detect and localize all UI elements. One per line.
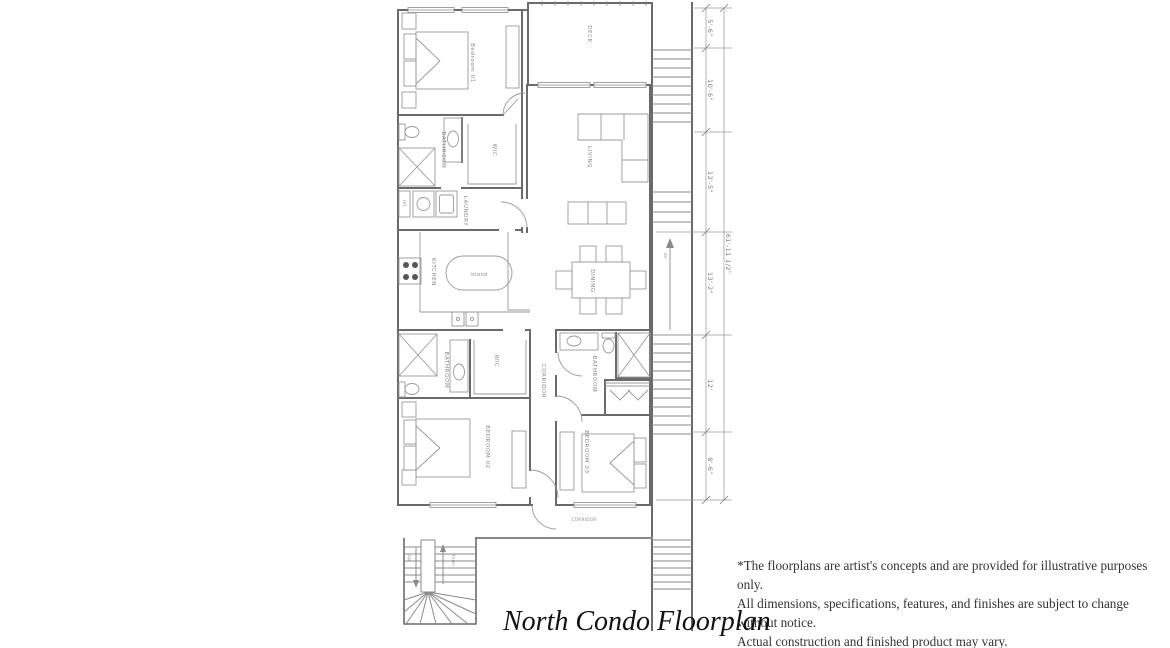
toilet-tank-icon — [399, 124, 405, 140]
room-label-wic-btm: WIC — [493, 355, 499, 368]
faucet-icon — [456, 317, 459, 320]
disclaimer-line-1: *The floorplans are artist's concepts an… — [737, 556, 1169, 594]
stair-label-up: up — [407, 555, 412, 561]
room-label-laundry: LAUNDRY — [462, 196, 468, 226]
floorplan-page: Bedroom 01 DECK BATHROOM WIC LAUNDRY ref… — [0, 0, 1170, 648]
wic-shelves-icon — [474, 340, 526, 394]
room-label-ref: ref — [402, 200, 407, 207]
stair-treads — [652, 50, 692, 589]
room-label-bathroom-btm: BATHROOM — [443, 352, 449, 389]
sink-icon — [448, 131, 459, 147]
vanity-icon — [450, 340, 468, 392]
stair-label-dn: dn — [663, 253, 668, 259]
bed-fold-icon — [416, 38, 440, 84]
arrowhead-icon — [440, 544, 446, 552]
toilet-tank-icon — [399, 382, 405, 397]
chair-icon — [606, 298, 622, 314]
winder-treads — [404, 592, 476, 624]
kitchen-sink-icon — [466, 312, 478, 326]
bed-fold-icon — [416, 426, 440, 470]
dim-label: 10'-6" — [706, 79, 714, 101]
shower-x-icon — [399, 148, 435, 186]
bedroom01-furniture — [402, 13, 519, 108]
door-arc-icon — [532, 505, 556, 529]
nightstand-icon — [402, 470, 416, 485]
bed-icon — [416, 419, 470, 477]
disclaimer-line-2: All dimensions, specifications, features… — [737, 594, 1169, 632]
room-label-island: island — [470, 272, 487, 278]
bedroom03-furniture — [560, 432, 646, 492]
chair-icon — [630, 271, 646, 289]
nightstand-icon — [402, 402, 416, 417]
pillow-icon — [634, 464, 646, 488]
stair-treads — [404, 547, 476, 582]
room-label-bedroom03: BEDROOM 03 — [583, 430, 589, 473]
disclaimer: *The floorplans are artist's concepts an… — [737, 556, 1169, 648]
chair-icon — [580, 298, 596, 314]
room-label-living: LIVING — [586, 146, 592, 168]
room-label-bedroom02: BEDROOM 02 — [484, 425, 490, 468]
bathroom-bottom-fixtures — [399, 334, 526, 397]
plan-title: North Condo Floorplan — [503, 606, 771, 638]
washer-icon — [413, 191, 434, 217]
console-divider — [588, 202, 607, 224]
toilet-tank-icon — [602, 333, 615, 338]
room-label-bedroom01: Bedroom 01 — [469, 43, 475, 83]
pillow-icon — [404, 446, 416, 470]
chair-icon — [580, 246, 596, 262]
stair-strip — [652, 50, 692, 589]
kitchen-fixtures — [399, 232, 530, 326]
dining-furniture — [556, 246, 646, 314]
doors — [501, 93, 582, 529]
toilet-icon — [405, 384, 419, 395]
door-arc-icon — [501, 202, 527, 228]
sink-icon — [454, 364, 465, 380]
room-label-corridor-v: CORRIDOR — [540, 364, 546, 399]
walls — [398, 3, 692, 630]
room-label-kitchen: KITCHEN — [430, 258, 436, 286]
disclaimer-line-3: Actual construction and finished product… — [737, 632, 1169, 648]
bedroom02-furniture — [402, 402, 526, 488]
dim-label: 12'-5" — [706, 171, 714, 193]
door-arc-icon — [556, 396, 582, 422]
bed-fold-icon — [610, 441, 634, 485]
dresser-icon — [512, 431, 526, 488]
living-furniture — [568, 114, 648, 224]
arrowhead-icon — [666, 238, 674, 248]
dim-label: 8'-6" — [706, 457, 714, 474]
door-arc-icon — [558, 352, 582, 376]
floorplan-drawing: Bedroom 01 DECK BATHROOM WIC LAUNDRY ref… — [0, 0, 1170, 648]
room-label-dining: DINING — [589, 269, 595, 293]
sink-icon — [567, 336, 581, 346]
stair-label-down: down — [451, 554, 456, 567]
dim-label-total: 61'-11 1/2" — [724, 234, 732, 275]
room-label-bathroom-right: BATHROOM — [591, 356, 597, 393]
room-label-wic-top: WIC — [491, 144, 497, 157]
range-icon — [399, 258, 421, 284]
shower-x-icon — [399, 334, 437, 376]
dresser-icon — [506, 26, 519, 88]
door-arc-icon — [530, 470, 558, 498]
toilet-icon — [603, 339, 614, 353]
dimension-labels: 5'-6" 10'-6" 12'-5" 13'-2" 12' 8'-6" 61'… — [706, 19, 732, 474]
dim-label: 5'-6" — [706, 19, 714, 36]
room-label-deck: DECK — [586, 25, 592, 43]
switchback-stairs — [404, 538, 476, 624]
hanger-chevron-icon — [610, 390, 648, 400]
dim-label: 12' — [706, 379, 714, 390]
room-label-corridor-h: CORRIDOR — [571, 517, 596, 522]
dryer-panel-icon — [440, 195, 454, 213]
bathroom-top-fixtures — [399, 118, 516, 186]
dresser-icon — [560, 432, 574, 490]
bed-icon — [416, 32, 468, 89]
toilet-icon — [405, 127, 419, 138]
burner-icons — [403, 262, 418, 280]
room-labels: Bedroom 01 DECK BATHROOM WIC LAUNDRY ref… — [402, 25, 668, 566]
faucet-icon — [470, 317, 473, 320]
kitchen-sink-icon — [452, 312, 464, 326]
room-label-bathroom-top: BATHROOM — [440, 132, 446, 169]
chair-icon — [556, 271, 572, 289]
pillow-icon — [404, 420, 416, 444]
pillow-icon — [404, 61, 416, 86]
nightstand-icon — [402, 13, 416, 29]
exterior-walls — [398, 3, 692, 630]
pillow-icon — [634, 438, 646, 462]
shower-x-icon — [618, 333, 650, 377]
closet-rod-icon — [605, 383, 650, 386]
arrowhead-icon — [413, 580, 419, 588]
pillow-icon — [404, 34, 416, 59]
dining-table-icon — [572, 262, 630, 298]
stair-stringer — [421, 540, 435, 592]
washer-door-icon — [417, 198, 430, 211]
console-icon — [568, 202, 626, 224]
dim-label: 13'-2" — [706, 272, 714, 294]
vanity-icon — [560, 333, 598, 350]
nightstand-icon — [402, 92, 416, 108]
chair-icon — [606, 246, 622, 262]
